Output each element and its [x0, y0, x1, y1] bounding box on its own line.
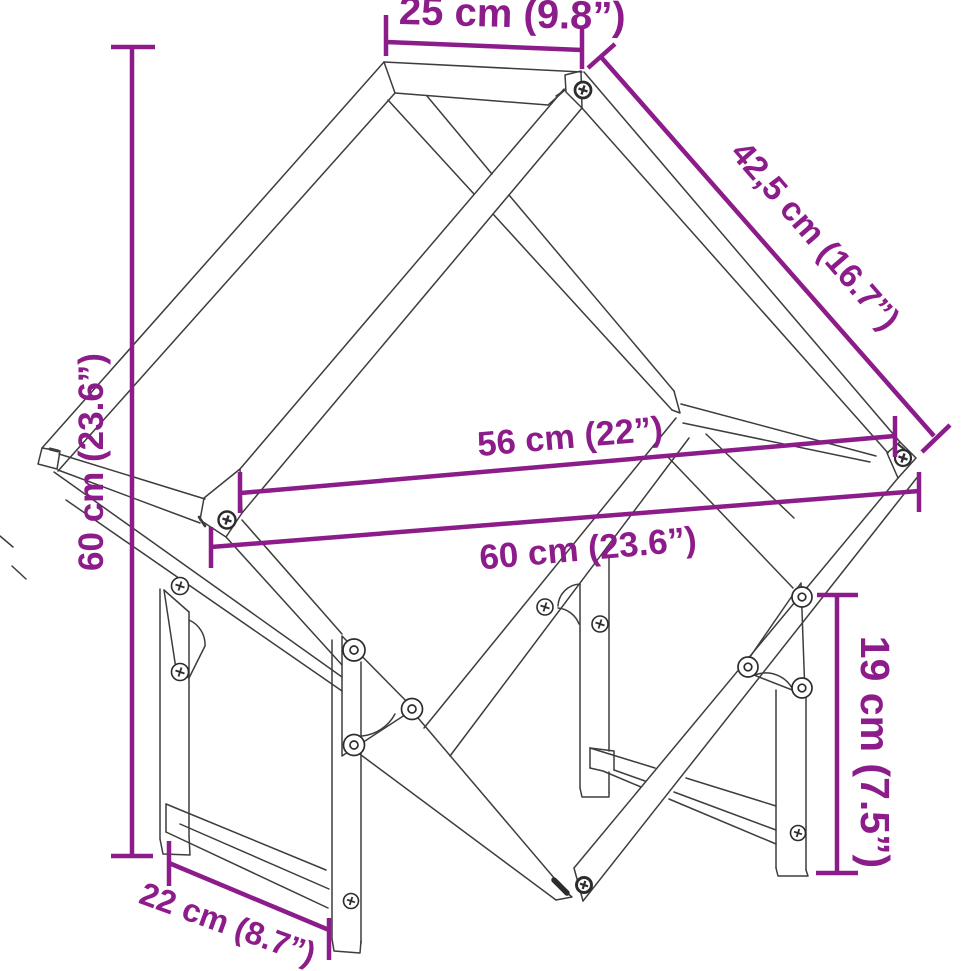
svg-text:25 cm (9.8”): 25 cm (9.8”)	[398, 0, 626, 39]
svg-text:19 cm (7.5”): 19 cm (7.5”)	[852, 636, 898, 868]
svg-text:60 cm (23.6”): 60 cm (23.6”)	[72, 353, 111, 571]
